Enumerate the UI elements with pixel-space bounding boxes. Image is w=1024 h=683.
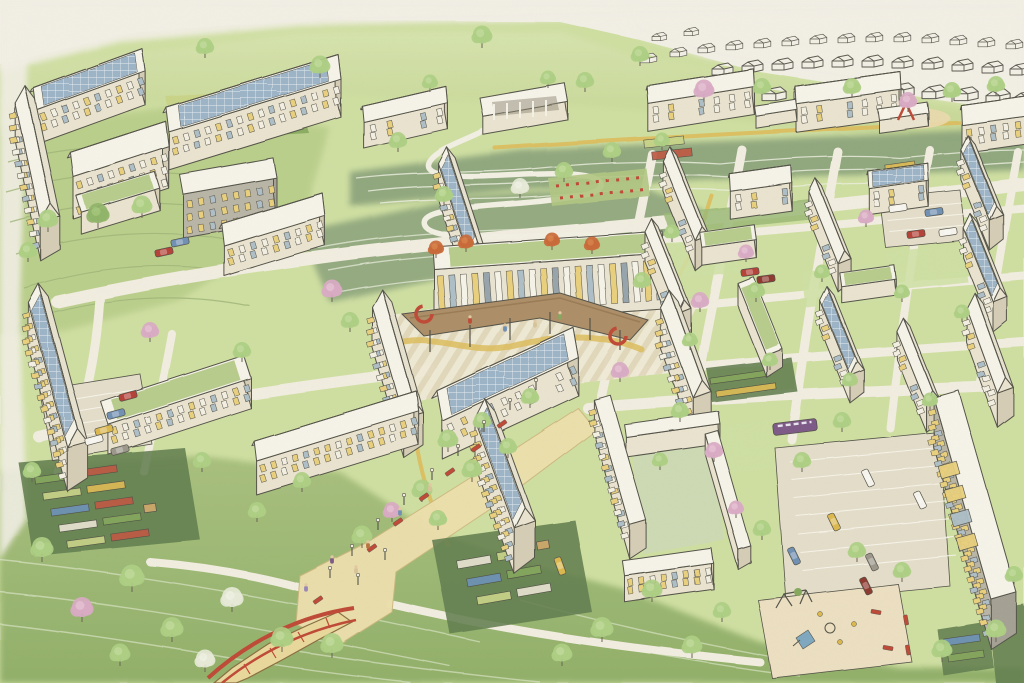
paper-grain-overlay (0, 0, 1024, 683)
masterplan-figure: Hand-drawn watercolour aerial illustrati… (0, 0, 1024, 683)
masterplan-illustration (0, 0, 1024, 683)
